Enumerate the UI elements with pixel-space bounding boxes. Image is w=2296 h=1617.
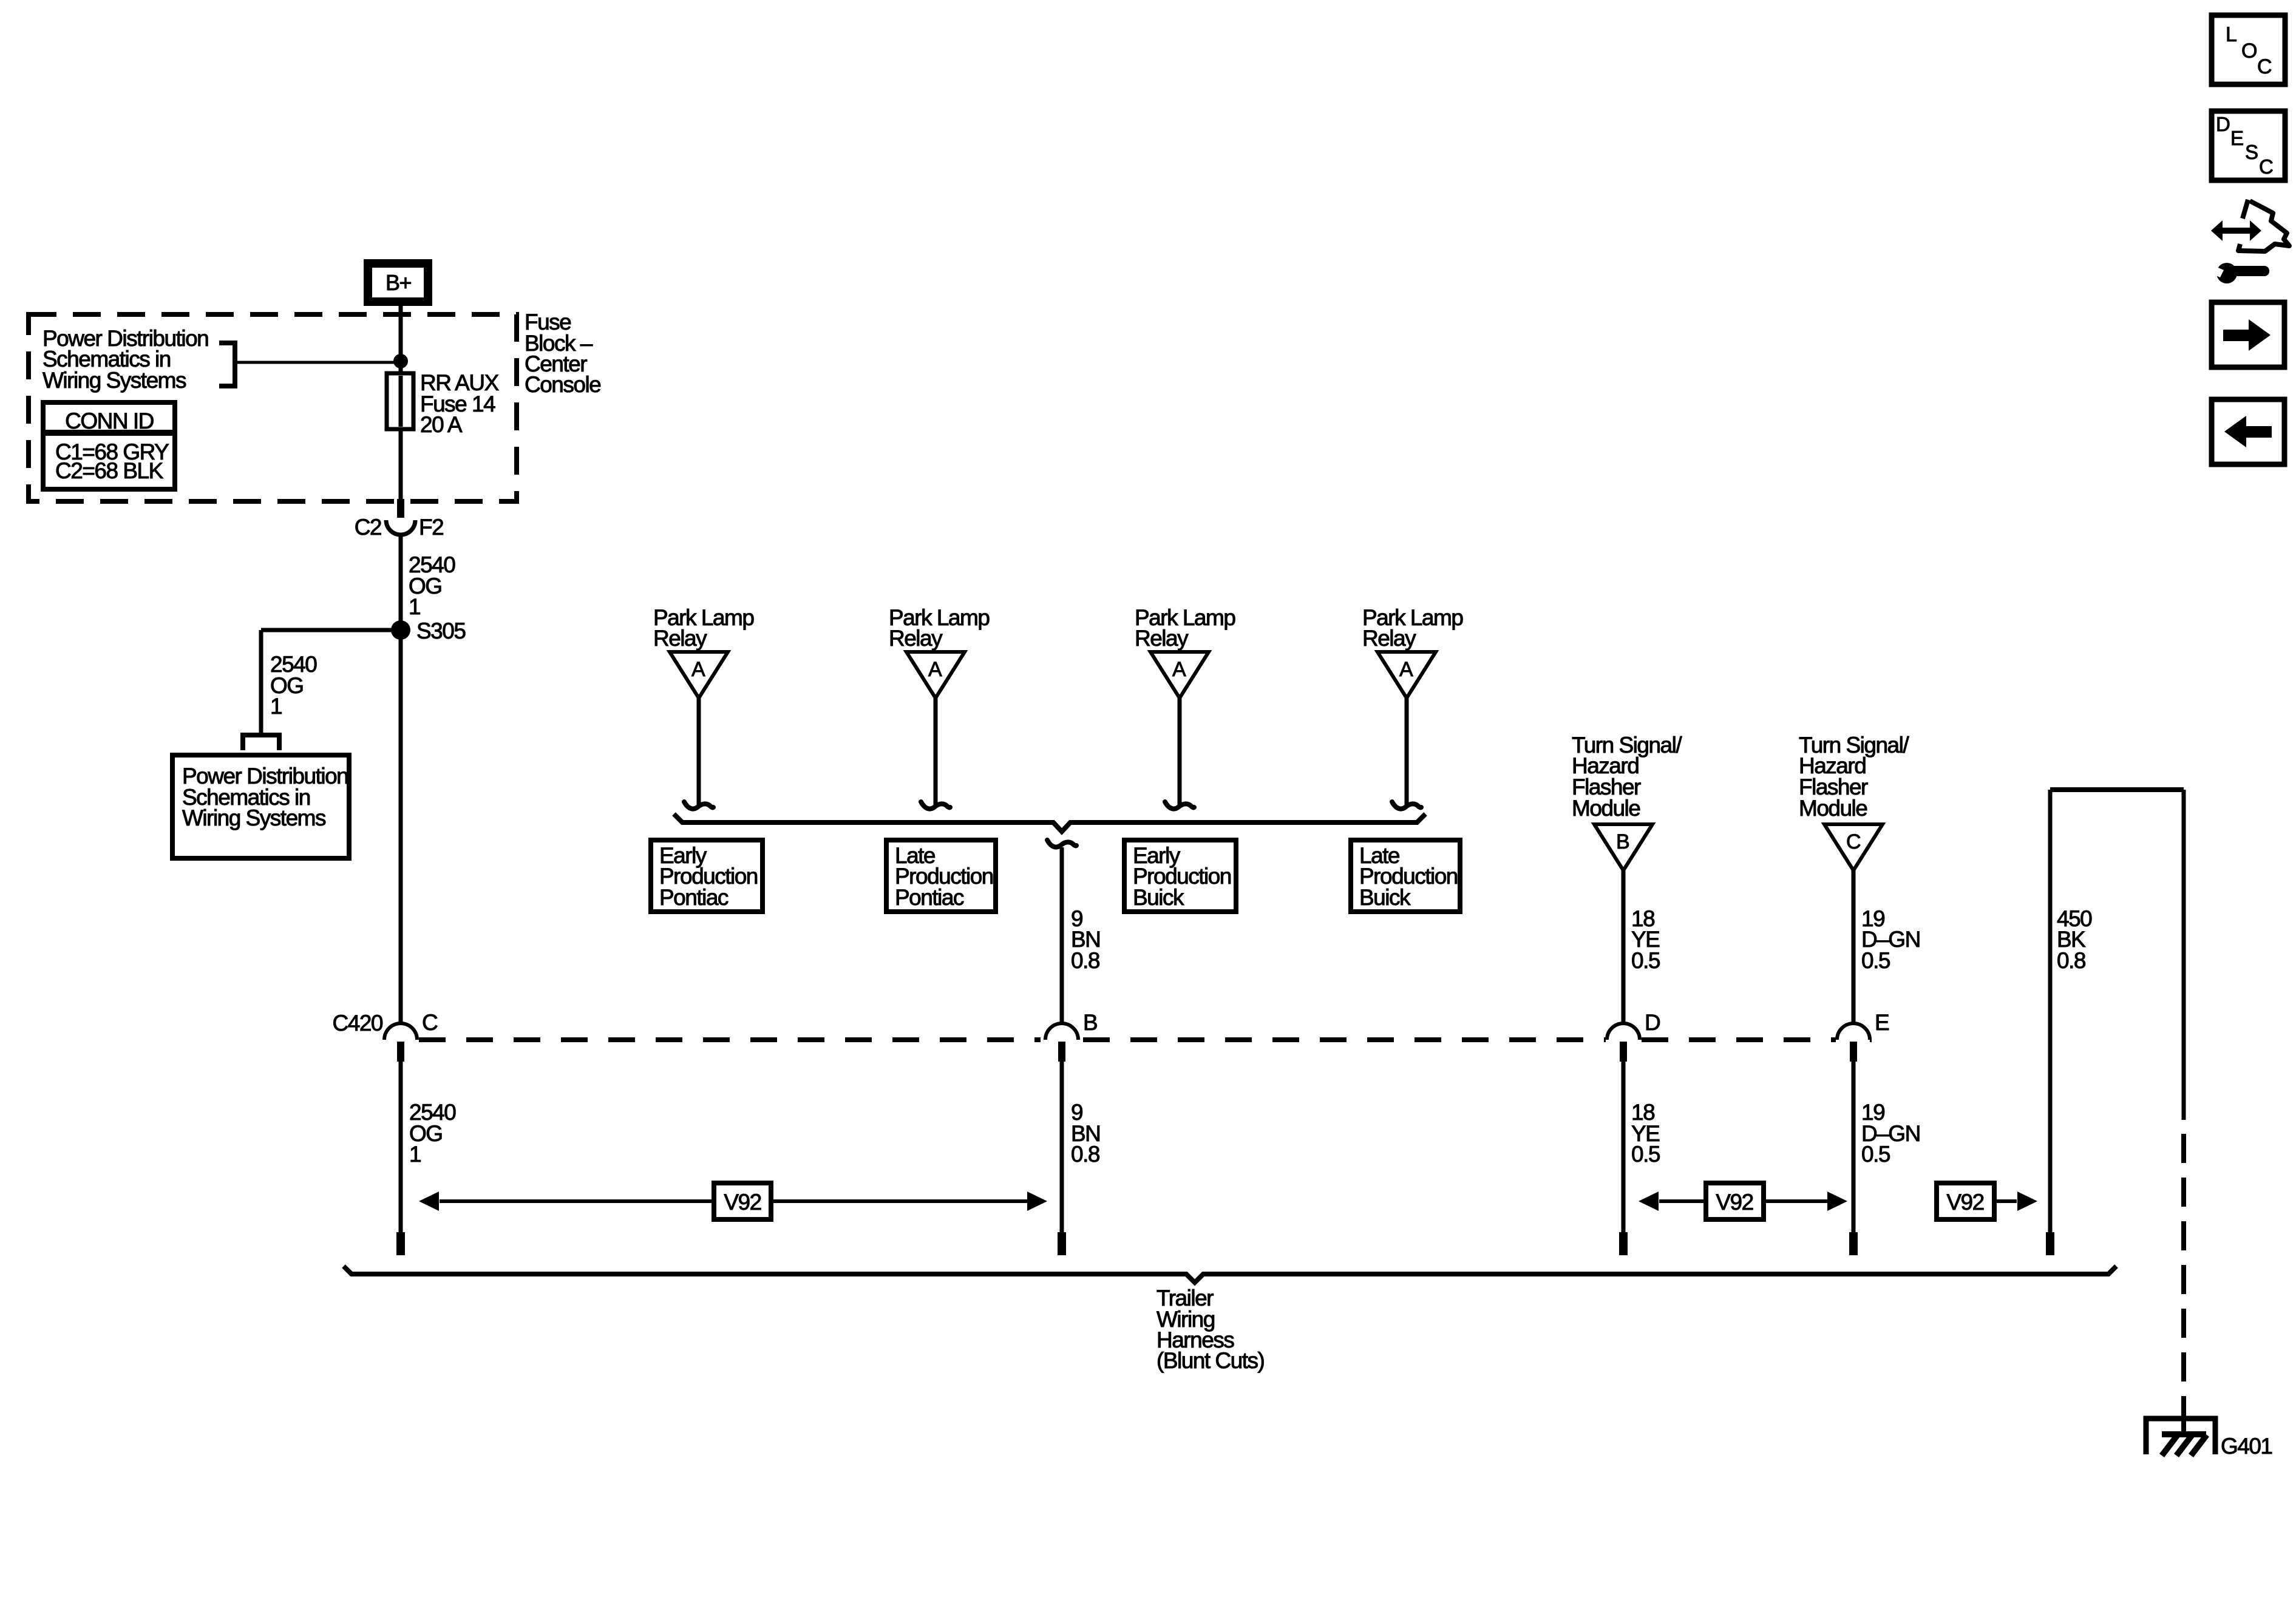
svg-text:V92: V92 <box>1946 1190 1983 1215</box>
svg-text:Pontiac: Pontiac <box>659 885 729 910</box>
svg-text:A: A <box>691 658 705 681</box>
svg-text:Wiring Systems: Wiring Systems <box>182 805 326 830</box>
svg-text:V92: V92 <box>1716 1190 1753 1215</box>
svg-text:B: B <box>1616 830 1629 853</box>
svg-text:0.5: 0.5 <box>1631 1142 1660 1167</box>
svg-text:0.8: 0.8 <box>1071 1142 1099 1167</box>
svg-text:0.5: 0.5 <box>1631 948 1660 973</box>
svg-text:C2: C2 <box>355 515 381 540</box>
svg-text:1: 1 <box>409 594 420 619</box>
svg-text:A: A <box>1172 658 1186 681</box>
svg-text:E: E <box>2230 127 2244 149</box>
svg-text:Relay: Relay <box>889 626 943 651</box>
svg-text:C420: C420 <box>333 1011 383 1036</box>
svg-text:20 A: 20 A <box>420 412 463 437</box>
svg-text:A: A <box>1399 658 1413 681</box>
svg-text:0.8: 0.8 <box>2057 948 2085 973</box>
svg-text:0.8: 0.8 <box>1071 948 1099 973</box>
svg-text:F2: F2 <box>419 515 443 540</box>
svg-text:Pontiac: Pontiac <box>895 885 964 910</box>
svg-text:Module: Module <box>1572 796 1640 821</box>
svg-text:(Blunt Cuts): (Blunt Cuts) <box>1156 1348 1265 1373</box>
svg-text:1: 1 <box>270 694 282 719</box>
svg-text:Wiring Systems: Wiring Systems <box>42 368 186 393</box>
svg-text:C: C <box>1846 830 1861 853</box>
svg-text:B+: B+ <box>385 270 412 295</box>
svg-text:L: L <box>2226 23 2237 46</box>
svg-text:C: C <box>2259 155 2274 178</box>
svg-text:V92: V92 <box>724 1190 761 1215</box>
svg-text:CONN ID: CONN ID <box>65 408 154 433</box>
svg-text:C: C <box>422 1010 438 1035</box>
svg-text:0.5: 0.5 <box>1861 1142 1890 1167</box>
svg-text:Buick: Buick <box>1133 885 1184 910</box>
svg-text:Relay: Relay <box>653 626 707 651</box>
svg-text:A: A <box>928 658 942 681</box>
svg-text:C2=68 BLK: C2=68 BLK <box>55 458 164 483</box>
svg-text:Console: Console <box>525 372 600 397</box>
svg-text:Module: Module <box>1799 796 1867 821</box>
svg-text:O: O <box>2241 39 2257 63</box>
svg-text:1: 1 <box>409 1142 421 1167</box>
svg-text:Relay: Relay <box>1135 626 1189 651</box>
svg-text:E: E <box>1875 1010 1889 1035</box>
svg-text:S305: S305 <box>416 619 466 643</box>
svg-text:D: D <box>1645 1010 1660 1035</box>
svg-text:D: D <box>2216 113 2230 135</box>
svg-text:B: B <box>1083 1010 1097 1035</box>
svg-text:Buick: Buick <box>1359 885 1411 910</box>
svg-text:S: S <box>2245 141 2258 163</box>
svg-text:Relay: Relay <box>1362 626 1416 651</box>
svg-text:G401: G401 <box>2221 1434 2272 1459</box>
svg-text:C: C <box>2257 55 2272 78</box>
svg-text:0.5: 0.5 <box>1861 948 1890 973</box>
